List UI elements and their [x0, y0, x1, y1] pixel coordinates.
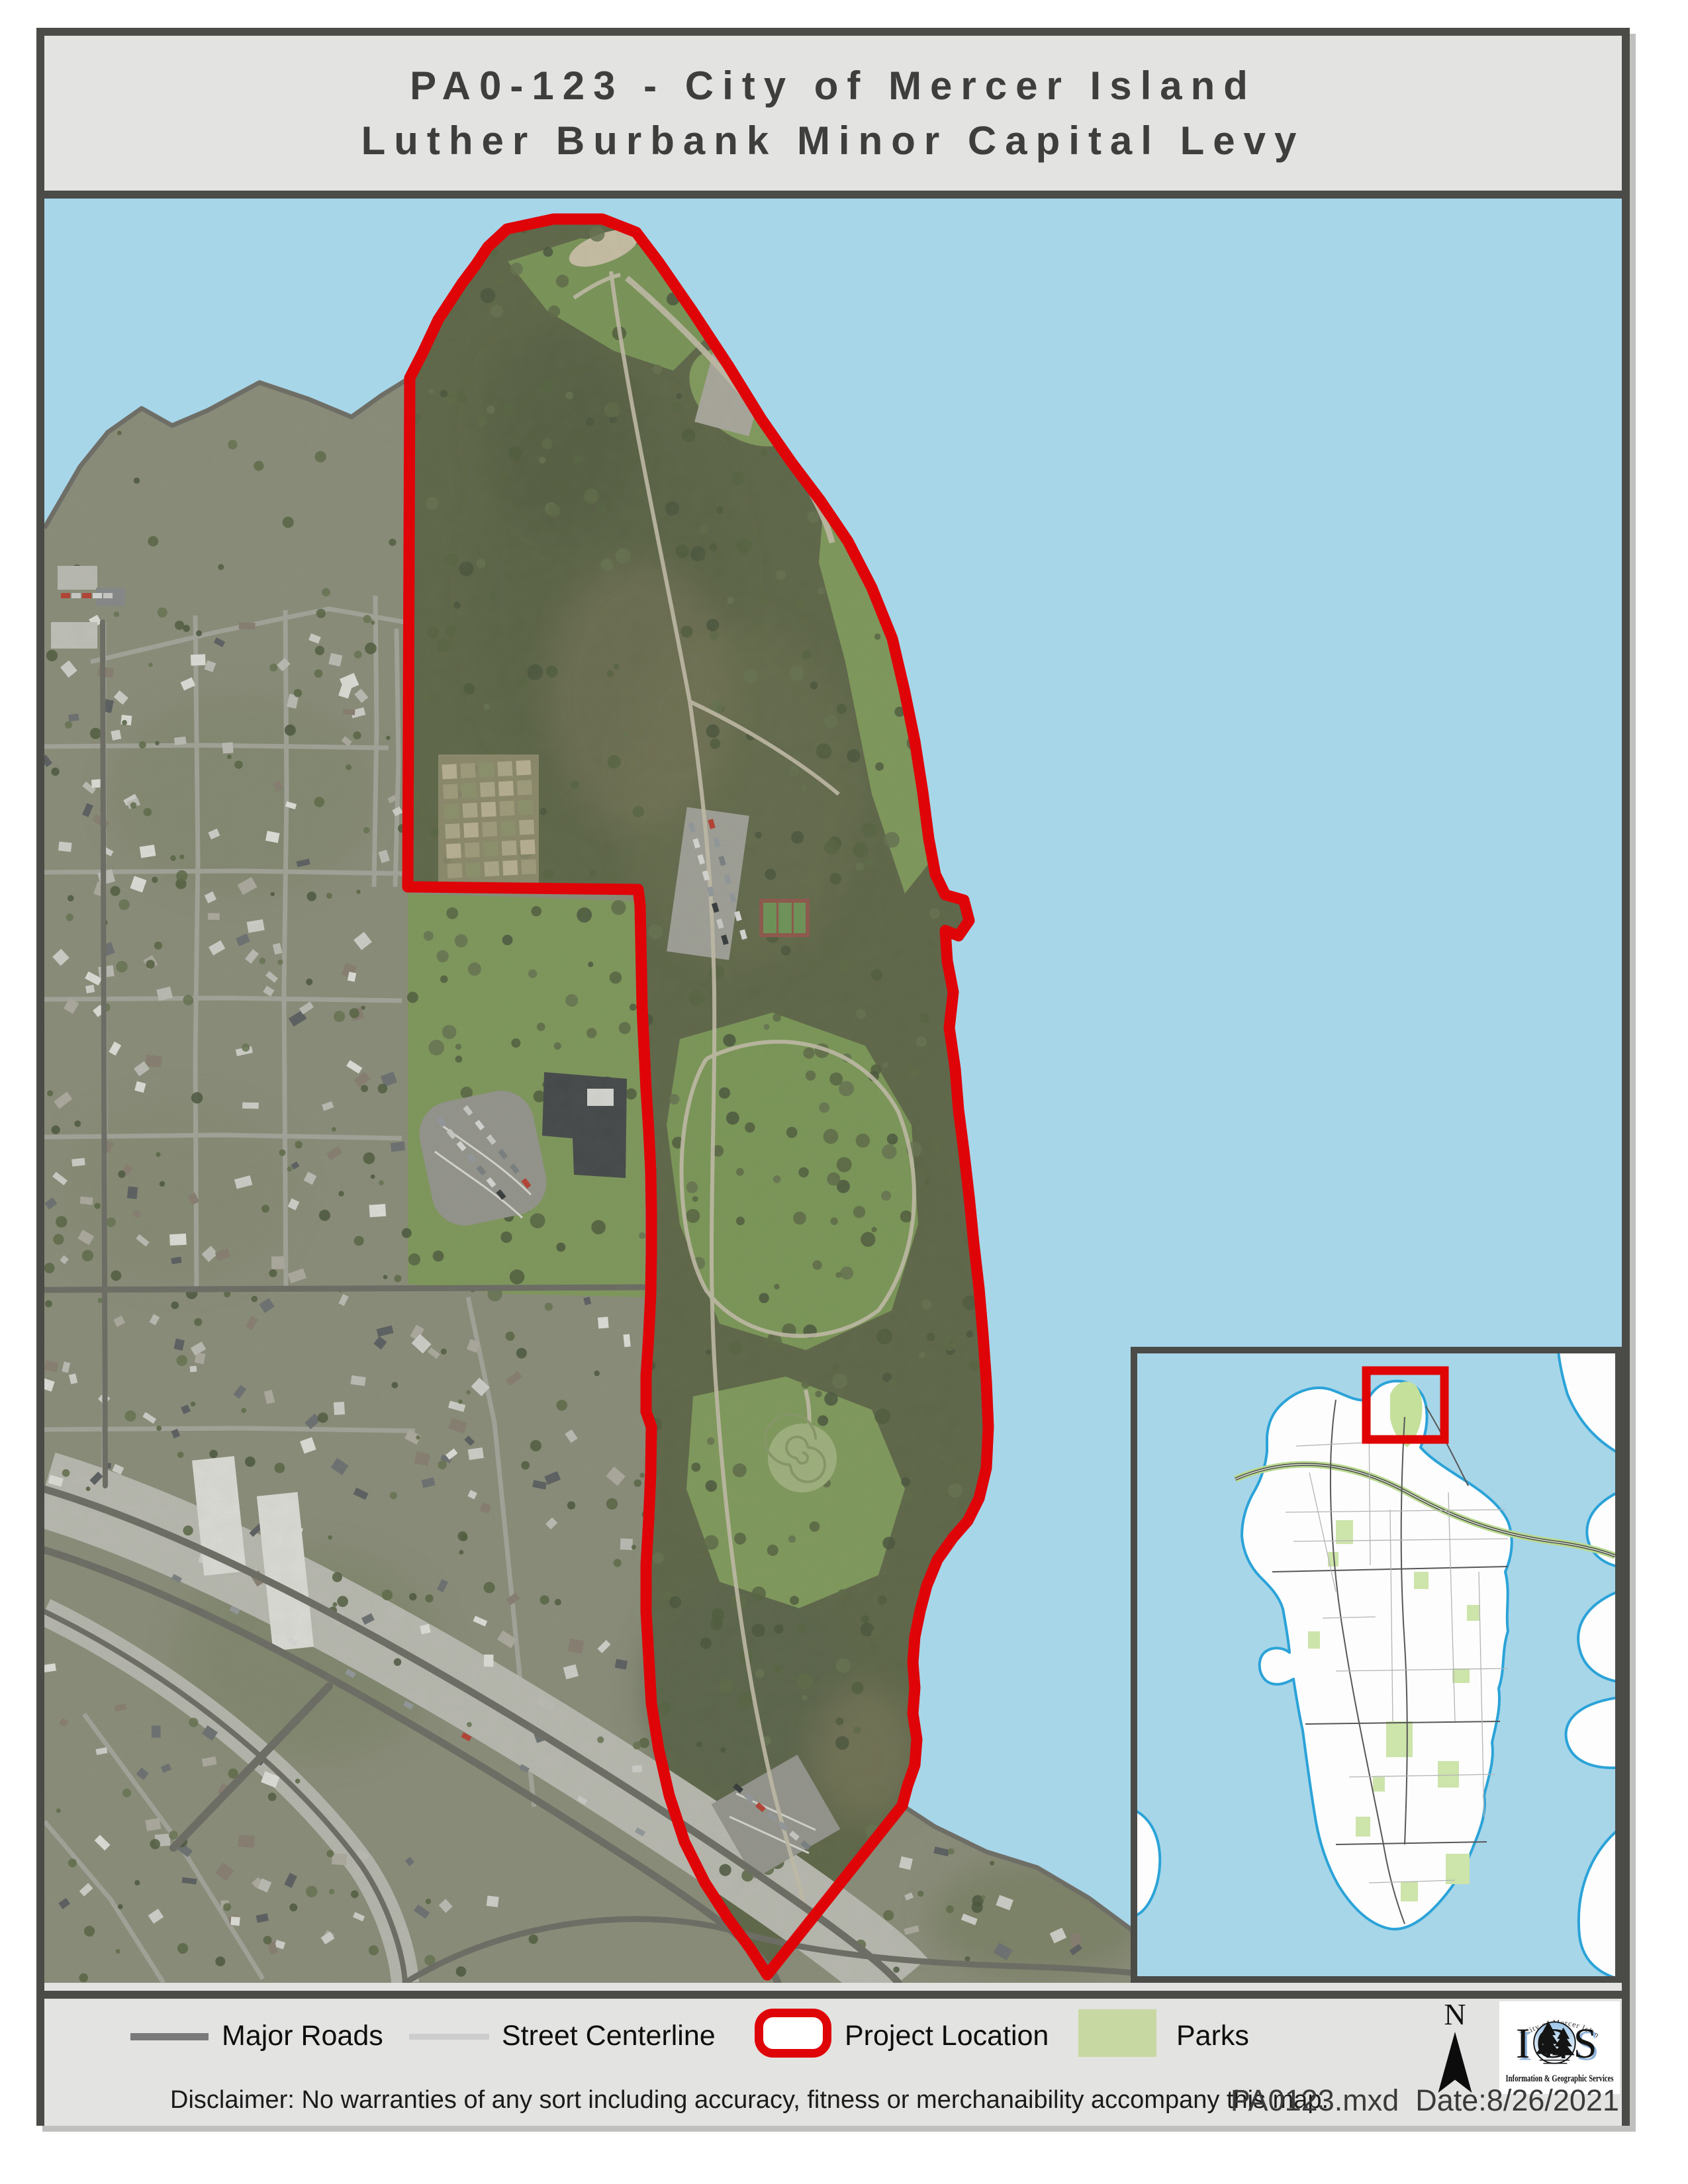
igs-logo: City of Mercer Island IGS IGS Informatio…: [1499, 2001, 1620, 2094]
map-title-line-1: PA0-123 - City of Mercer Island: [410, 63, 1256, 109]
map-frame: PA0-123 - City of Mercer Island Luther B…: [36, 28, 1630, 2126]
legend-label-parks: Parks: [1176, 2020, 1249, 2052]
legend-label-street-centerline: Street Centerline: [502, 2020, 716, 2052]
title-bar: PA0-123 - City of Mercer Island Luther B…: [44, 36, 1622, 199]
legend-label-project-location: Project Location: [845, 2020, 1049, 2052]
logo-subtitle: Information & Geographic Services: [1505, 2073, 1613, 2084]
parks-swatch: [1078, 2009, 1156, 2057]
main-map: [44, 199, 1622, 1983]
inset-overview-map: [1131, 1347, 1622, 1983]
file-date-text: PA0123.mxd Date:8/26/2021: [1231, 2083, 1619, 2118]
legend-footer: Major Roads Street Centerline Project Lo…: [44, 1991, 1622, 2126]
map-document-page: PA0-123 - City of Mercer Island Luther B…: [0, 0, 1688, 2184]
map-title-line-2: Luther Burbank Minor Capital Levy: [361, 118, 1305, 163]
north-label: N: [1432, 1999, 1478, 2030]
project-location-swatch: [755, 2009, 831, 2058]
logo-acronym: IGS: [1516, 2020, 1603, 2067]
major-roads-swatch: [130, 2033, 209, 2040]
legend-label-major-roads: Major Roads: [222, 2020, 383, 2052]
disclaimer-text: Disclaimer: No warranties of any sort in…: [170, 2086, 1329, 2115]
street-centerline-swatch: [409, 2034, 489, 2040]
